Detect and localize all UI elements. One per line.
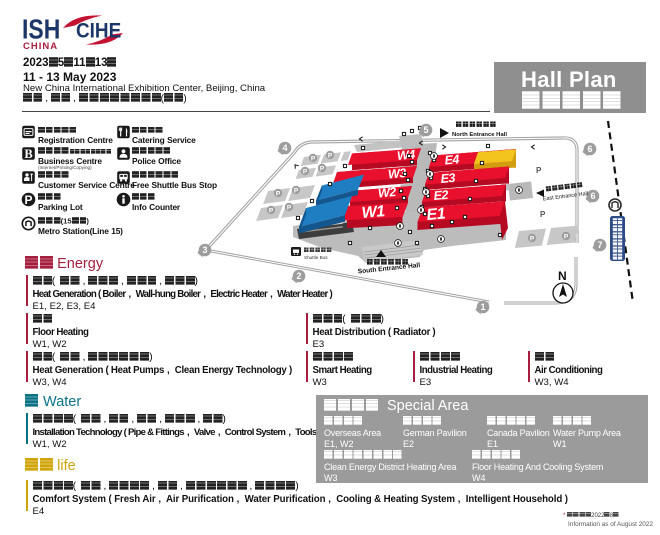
svg-text:4: 4 [282,143,287,153]
svg-text:B: B [24,147,32,161]
svg-text:P: P [287,204,292,211]
svg-text:1: 1 [480,302,485,312]
svg-text:East Entrance Hall: East Entrance Hall [543,191,589,203]
svg-text:6: 6 [590,191,595,201]
svg-text:P: P [536,166,542,175]
svg-text:P: P [303,168,308,175]
svg-text:3: 3 [202,245,207,255]
svg-text:P: P [320,165,325,172]
svg-text:P: P [540,210,546,219]
svg-text:W1: W1 [361,203,386,222]
svg-text:P: P [564,233,569,240]
svg-text:W2: W2 [377,185,396,201]
svg-text:N: N [558,269,567,283]
svg-text:P: P [276,190,281,197]
svg-text:North Entrance Hall: North Entrance Hall [452,132,507,138]
svg-text:P: P [24,193,32,207]
svg-text:P: P [294,187,299,194]
svg-text:P: P [328,152,333,159]
svg-text:7: 7 [597,240,602,250]
svg-text:E1: E1 [426,205,447,224]
svg-text:Shuttle Bus: Shuttle Bus [304,255,328,260]
svg-text:6: 6 [587,144,592,154]
svg-text:5: 5 [423,125,428,135]
svg-text:E3: E3 [440,171,456,186]
svg-text:P: P [530,235,535,242]
svg-text:P: P [269,207,274,214]
svg-text:E4: E4 [444,152,460,167]
svg-text:E2: E2 [433,188,449,203]
svg-text:P: P [311,155,316,162]
